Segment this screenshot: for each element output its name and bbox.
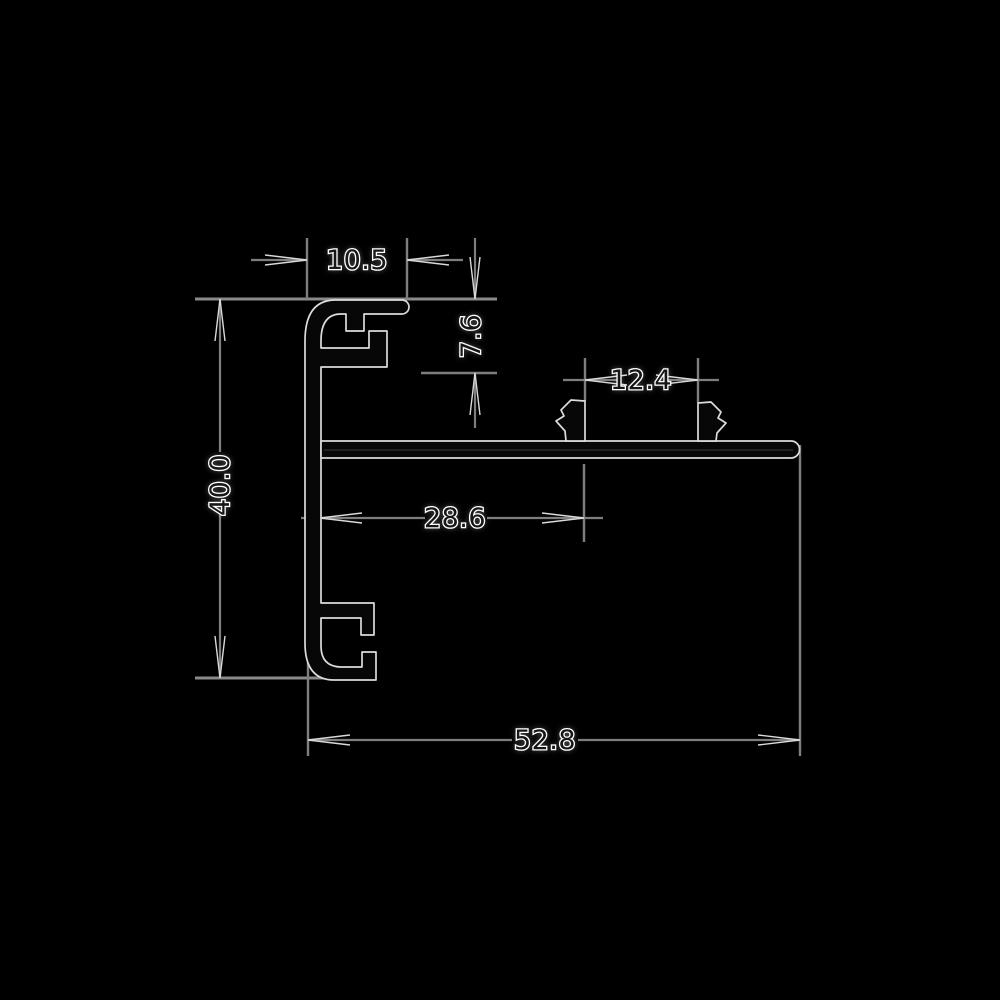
dimension-lines	[195, 238, 800, 756]
dim-label-clip-slot-width: 12.4	[610, 365, 672, 396]
profile-right-clip	[698, 402, 726, 441]
dim-label-top-channel-height: 7.6	[456, 314, 487, 358]
profile-left-clip	[556, 400, 585, 441]
profile-web-and-channels	[305, 300, 409, 680]
dim-label-top-flange-width: 10.5	[326, 245, 388, 276]
technical-drawing-canvas: 10.5 7.6 12.4 28.6 40.0 52.8	[0, 0, 1000, 1000]
dim-52-8	[308, 445, 800, 756]
profile-shape	[305, 300, 800, 680]
profile-drawing: 10.5 7.6 12.4 28.6 40.0 52.8	[0, 0, 1000, 1000]
dim-label-total-height: 40.0	[205, 454, 236, 516]
dim-label-web-to-slot-offset: 28.6	[424, 503, 486, 534]
dim-label-total-width: 52.8	[514, 725, 576, 756]
